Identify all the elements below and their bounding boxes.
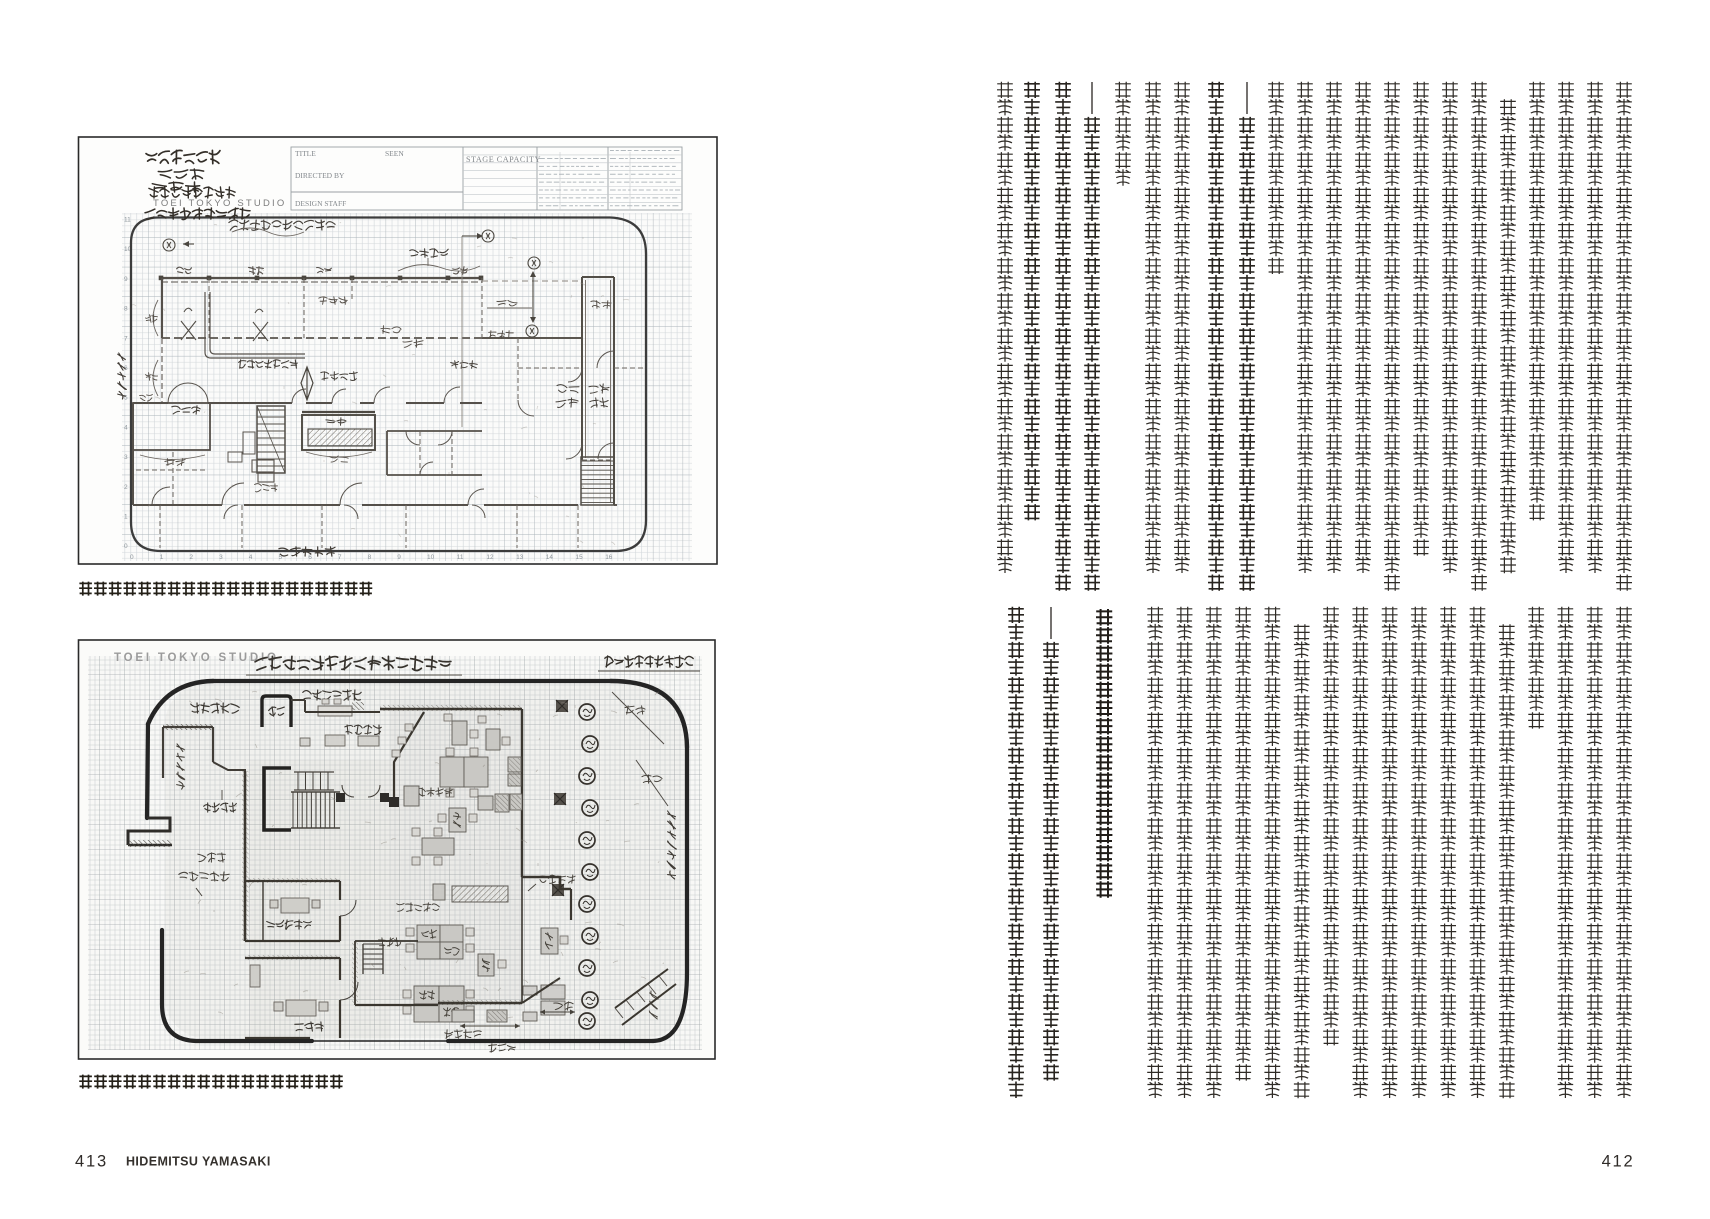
svg-text:15: 15 — [576, 554, 584, 561]
svg-text:7: 7 — [124, 335, 128, 342]
svg-text:4: 4 — [249, 554, 253, 561]
svg-text:14: 14 — [546, 554, 554, 561]
svg-text:16: 16 — [605, 554, 613, 561]
svg-text:9: 9 — [397, 554, 401, 561]
svg-text:11: 11 — [457, 554, 464, 561]
svg-text:1: 1 — [160, 554, 164, 561]
svg-text:13: 13 — [516, 554, 524, 561]
svg-text:8: 8 — [368, 554, 372, 561]
svg-text:0: 0 — [130, 554, 134, 561]
svg-text:DESIGN STAFF: DESIGN STAFF — [295, 199, 346, 208]
svg-text:SEEN: SEEN — [385, 149, 404, 158]
svg-text:DIRECTED BY: DIRECTED BY — [295, 171, 345, 180]
svg-text:10: 10 — [427, 554, 435, 561]
svg-text:2: 2 — [189, 554, 193, 561]
svg-text:6: 6 — [308, 554, 312, 561]
svg-text:12: 12 — [486, 554, 494, 561]
svg-text:0: 0 — [124, 543, 128, 550]
svg-text:HIDEMITSU YAMASAKI: HIDEMITSU YAMASAKI — [126, 1155, 271, 1169]
svg-text:3: 3 — [124, 454, 128, 461]
svg-text:413: 413 — [75, 1153, 108, 1171]
svg-text:412: 412 — [1602, 1153, 1635, 1171]
svg-text:8: 8 — [124, 306, 128, 313]
svg-text:4: 4 — [124, 424, 128, 431]
svg-text:2: 2 — [124, 484, 128, 491]
svg-text:1: 1 — [124, 514, 128, 521]
svg-text:3: 3 — [219, 554, 223, 561]
svg-text:TOEI TOKYO STUDIO: TOEI TOKYO STUDIO — [114, 652, 279, 664]
svg-text:STAGE CAPACITY: STAGE CAPACITY — [466, 155, 541, 164]
svg-text:11: 11 — [124, 217, 131, 224]
svg-text:TITLE: TITLE — [295, 149, 316, 158]
svg-text:7: 7 — [338, 554, 342, 561]
svg-text:9: 9 — [124, 276, 128, 283]
